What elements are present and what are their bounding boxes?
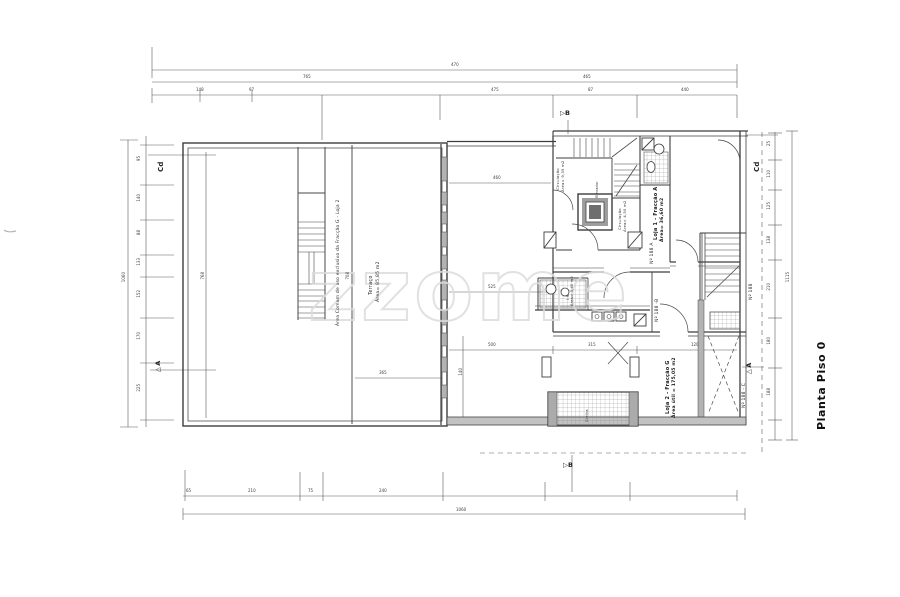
dim-label: 97 [249, 88, 254, 92]
dim-label: 25 [767, 141, 771, 146]
scan-smudge [4, 230, 16, 232]
section-marker-b-top: ▷B [560, 110, 570, 117]
dim-label: 1115 [786, 272, 790, 282]
watermark: zzome [308, 248, 630, 334]
dim-label: 225 [137, 384, 141, 392]
dim-label: 470 [451, 63, 459, 67]
dim-label: 125 [767, 202, 771, 210]
dim-label: 152 [137, 290, 141, 298]
common-area-label: Área Comum de uso exclusivo da Fracção G… [337, 198, 342, 326]
dim-label: 210 [248, 489, 256, 493]
dim-label: 440 [681, 88, 689, 92]
shop2-area-label: Área útil = 175,05 m2 [673, 352, 678, 418]
dim-label: 148 [196, 88, 204, 92]
section-marker-cd-right: Cd [754, 148, 761, 172]
grate-label: Grelha [586, 400, 590, 422]
door-number-188c: Nº 188 - C [743, 376, 748, 408]
elevator-label: Elevador [596, 172, 600, 198]
shop1-label: Loja 1 - Fracção A [654, 182, 659, 240]
dim-label: 1060 [122, 272, 126, 282]
door-number-188: Nº 188 [750, 270, 755, 300]
door-number-188a: Nº 188 A [651, 234, 656, 264]
section-marker-b-bottom: ▷B [563, 462, 573, 469]
floor-plan-page: zzome Área Comum de uso exclusivo da Fra… [0, 0, 900, 597]
dim-label: 210 [767, 283, 771, 291]
dim-label: 188 [767, 388, 771, 396]
dim-label: 365 [379, 371, 387, 375]
dim-label: 87 [588, 88, 593, 92]
dim-label: 460 [493, 176, 501, 180]
page-title: Planta Piso 0 [815, 344, 828, 430]
door-number-188b: Nº 188 -B [656, 288, 661, 322]
dim-label: 240 [379, 489, 387, 493]
dim-label: 120 [691, 343, 699, 347]
dim-label: 110 [767, 170, 771, 178]
elevator-shaft [578, 194, 612, 230]
dim-label: 65 [186, 489, 191, 493]
shop1-area-label: Área= 36,60 m2 [661, 184, 666, 242]
shop2-label: Loja 2 - Fracção G [666, 352, 671, 414]
terrace-label: Terraço [369, 245, 374, 295]
dim-label: 138 [767, 236, 771, 244]
section-marker-a-right: ▷A [746, 350, 753, 376]
dim-label: 88 [137, 230, 141, 235]
section-marker-a-left: ▷A [155, 348, 162, 374]
dim-label: 500 [488, 343, 496, 347]
wc-area-label: Área= 3,40 m2 [571, 280, 575, 306]
section-marker-cd-left: Cd [158, 150, 165, 172]
dim-label: 1060 [456, 508, 466, 512]
circulation2-area-label: Área= 4,50 m2 [623, 198, 627, 232]
dim-label: 765 [303, 75, 311, 79]
dim-label: 465 [583, 75, 591, 79]
dim-label: 140 [459, 368, 463, 376]
dim-label: 768 [201, 272, 205, 280]
dim-label: 708 [346, 272, 350, 280]
dim-label: 170 [137, 332, 141, 340]
dim-label: 475 [491, 88, 499, 92]
dim-label: 180 [767, 337, 771, 345]
dim-label: 75 [308, 489, 313, 493]
dim-label: 140 [137, 194, 141, 202]
dim-label: 315 [588, 343, 596, 347]
dim-label: 525 [488, 285, 496, 289]
dim-label: 95 [137, 156, 141, 161]
dim-label: 133 [137, 258, 141, 266]
ramp-lines [708, 336, 739, 414]
circulation1-area-label: Área= 9,35 m2 [561, 154, 565, 192]
terrace-area-label: Área= 85,85 m2 [377, 240, 382, 302]
